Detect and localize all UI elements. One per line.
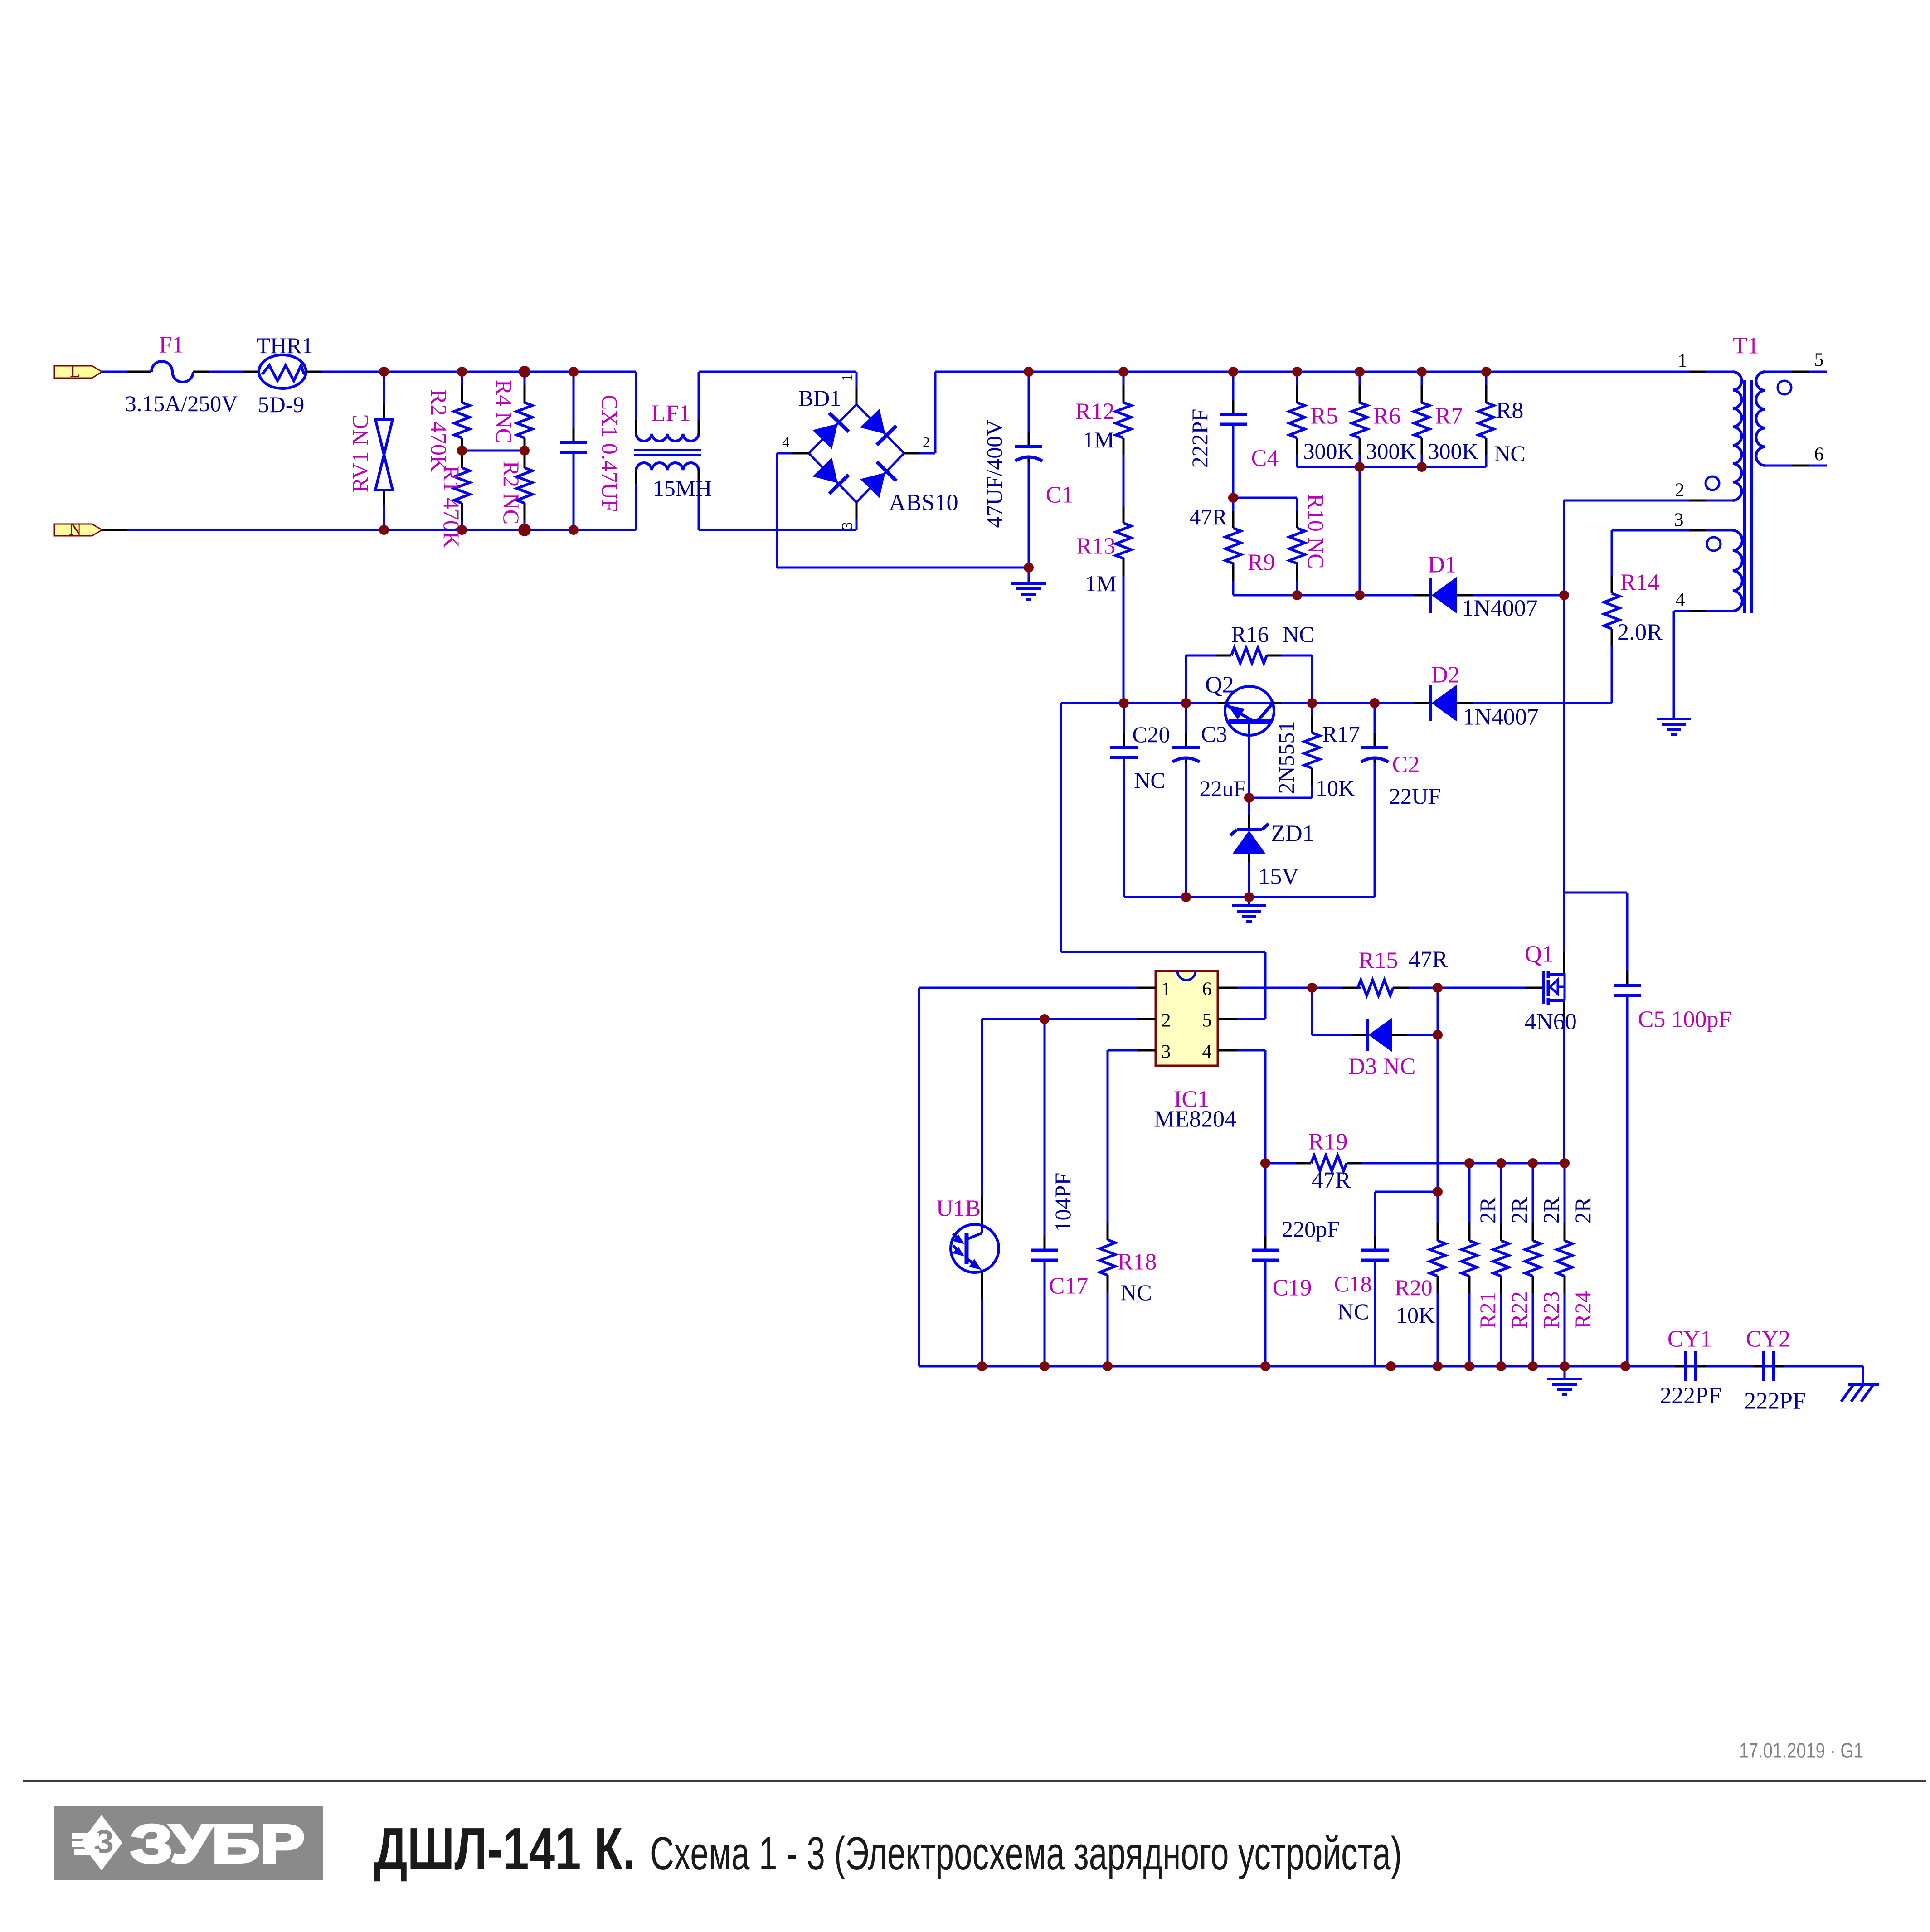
svg-text:3: 3 xyxy=(1162,1041,1171,1062)
svg-text:LF1: LF1 xyxy=(651,401,691,427)
svg-text:C20: C20 xyxy=(1132,722,1170,747)
svg-text:2: 2 xyxy=(1162,1010,1171,1031)
svg-text:R20: R20 xyxy=(1395,1275,1432,1300)
svg-text:C18: C18 xyxy=(1334,1271,1371,1296)
svg-text:R8: R8 xyxy=(1496,398,1524,424)
svg-text:22uF: 22uF xyxy=(1200,776,1246,801)
svg-text:R15: R15 xyxy=(1359,948,1398,974)
svg-text:2R: 2R xyxy=(1507,1197,1532,1223)
svg-text:T1: T1 xyxy=(1733,333,1759,359)
svg-text:BD1: BD1 xyxy=(798,385,841,411)
svg-text:4: 4 xyxy=(1202,1041,1212,1062)
svg-text:C2: C2 xyxy=(1392,752,1420,778)
svg-text:1M: 1M xyxy=(1085,571,1116,596)
svg-text:R22: R22 xyxy=(1507,1291,1532,1329)
svg-text:R19: R19 xyxy=(1308,1129,1348,1155)
svg-text:3: 3 xyxy=(1674,510,1684,530)
svg-text:R5: R5 xyxy=(1311,403,1338,429)
svg-text:Q2: Q2 xyxy=(1205,672,1234,698)
svg-text:300K: 300K xyxy=(1303,438,1353,464)
svg-text:F1: F1 xyxy=(159,332,184,358)
svg-text:1: 1 xyxy=(839,374,856,382)
svg-text:NC: NC xyxy=(1134,767,1165,793)
svg-text:R21: R21 xyxy=(1475,1291,1500,1329)
svg-text:C5 100pF: C5 100pF xyxy=(1638,1007,1732,1033)
svg-text:ДШЛ-141 К.: ДШЛ-141 К. xyxy=(374,1815,636,1882)
svg-text:L: L xyxy=(70,362,80,381)
svg-text:R24: R24 xyxy=(1570,1291,1595,1329)
svg-text:C17: C17 xyxy=(1049,1273,1089,1299)
svg-text:CY2: CY2 xyxy=(1746,1326,1790,1352)
svg-text:47R: 47R xyxy=(1409,947,1448,973)
svg-text:Q1: Q1 xyxy=(1525,942,1554,967)
svg-text:ME8204: ME8204 xyxy=(1154,1107,1236,1132)
svg-text:NC: NC xyxy=(1494,441,1525,466)
svg-text:NC: NC xyxy=(1337,1299,1369,1324)
svg-text:R4 NC: R4 NC xyxy=(491,380,517,443)
svg-text:1N4007: 1N4007 xyxy=(1462,596,1538,621)
svg-text:300K: 300K xyxy=(1366,438,1416,464)
svg-text:5: 5 xyxy=(1814,350,1824,370)
svg-text:ЗУБР: ЗУБР xyxy=(131,1814,305,1874)
svg-text:2R: 2R xyxy=(1538,1197,1564,1223)
svg-text:D2: D2 xyxy=(1431,662,1460,688)
svg-text:R16: R16 xyxy=(1231,621,1269,647)
svg-text:15V: 15V xyxy=(1258,864,1299,890)
svg-text:3: 3 xyxy=(839,522,856,530)
svg-text:R6: R6 xyxy=(1373,403,1401,429)
svg-text:4N60: 4N60 xyxy=(1524,1009,1577,1035)
svg-text:2: 2 xyxy=(923,434,930,450)
svg-text:4: 4 xyxy=(1676,589,1685,610)
svg-text:RV1 NC: RV1 NC xyxy=(347,414,373,492)
svg-text:R7: R7 xyxy=(1435,403,1463,429)
svg-text:4: 4 xyxy=(782,434,789,450)
svg-text:D3 NC: D3 NC xyxy=(1348,1054,1416,1080)
svg-text:D1: D1 xyxy=(1428,552,1457,578)
svg-text:ABS10: ABS10 xyxy=(889,490,958,516)
svg-text:22UF: 22UF xyxy=(1389,783,1441,809)
svg-text:N: N xyxy=(69,520,81,539)
svg-text:CY1: CY1 xyxy=(1667,1326,1712,1352)
svg-text:47UF/400V: 47UF/400V xyxy=(982,420,1007,528)
svg-text:R9: R9 xyxy=(1248,550,1275,576)
svg-text:ZD1: ZD1 xyxy=(1271,821,1314,847)
svg-text:222PF: 222PF xyxy=(1744,1388,1806,1414)
svg-text:R17: R17 xyxy=(1322,721,1360,747)
svg-text:C19: C19 xyxy=(1273,1275,1312,1301)
svg-text:1N4007: 1N4007 xyxy=(1463,704,1539,730)
svg-text:NC: NC xyxy=(1120,1280,1152,1305)
svg-text:3.15A/250V: 3.15A/250V xyxy=(125,391,238,416)
svg-text:R2 470K: R2 470K xyxy=(426,389,452,472)
svg-text:R13: R13 xyxy=(1076,534,1116,559)
svg-text:R10 NC: R10 NC xyxy=(1303,494,1329,568)
svg-text:R1 470K: R1 470K xyxy=(439,466,464,548)
svg-text:104PF: 104PF xyxy=(1050,1173,1075,1232)
svg-text:C3: C3 xyxy=(1201,721,1227,747)
svg-text:5D-9: 5D-9 xyxy=(258,392,305,417)
svg-text:R23: R23 xyxy=(1538,1291,1564,1329)
svg-text:1: 1 xyxy=(1162,979,1171,1000)
svg-text:10K: 10K xyxy=(1316,775,1355,801)
svg-text:R14: R14 xyxy=(1620,570,1660,596)
svg-text:R18: R18 xyxy=(1118,1249,1157,1275)
svg-text:C4: C4 xyxy=(1251,446,1279,471)
svg-text:10K: 10K xyxy=(1396,1302,1435,1328)
svg-text:17.01.2019 · G1: 17.01.2019 · G1 xyxy=(1739,1739,1863,1762)
svg-text:47R: 47R xyxy=(1189,504,1227,529)
svg-text:2R: 2R xyxy=(1570,1197,1595,1223)
svg-text:220pF: 220pF xyxy=(1282,1216,1340,1242)
svg-text:6: 6 xyxy=(1814,444,1824,465)
svg-text:1M: 1M xyxy=(1083,427,1114,452)
svg-text:5: 5 xyxy=(1202,1010,1212,1031)
svg-text:R2 NC: R2 NC xyxy=(499,461,524,524)
svg-text:47R: 47R xyxy=(1312,1168,1351,1194)
svg-text:Схема 1 - 3 (Электросхема заря: Схема 1 - 3 (Электросхема зарядного устр… xyxy=(650,1827,1402,1879)
svg-text:222PF: 222PF xyxy=(1660,1383,1721,1409)
svg-text:222PF: 222PF xyxy=(1187,409,1212,468)
svg-text:6: 6 xyxy=(1202,979,1212,1000)
svg-text:U1B: U1B xyxy=(936,1196,981,1222)
svg-text:2N5551: 2N5551 xyxy=(1274,721,1299,794)
svg-text:CX1 0.47UF: CX1 0.47UF xyxy=(597,395,622,512)
svg-text:2.0R: 2.0R xyxy=(1617,620,1663,646)
svg-text:2: 2 xyxy=(1675,480,1685,500)
svg-text:1: 1 xyxy=(1678,350,1687,371)
svg-text:2R: 2R xyxy=(1475,1197,1500,1223)
svg-text:NC: NC xyxy=(1283,621,1314,647)
svg-text:R12: R12 xyxy=(1075,399,1115,425)
svg-text:THR1: THR1 xyxy=(257,333,313,358)
svg-text:C1: C1 xyxy=(1046,482,1074,508)
svg-text:15MH: 15MH xyxy=(653,476,712,501)
svg-text:300K: 300K xyxy=(1428,438,1478,464)
